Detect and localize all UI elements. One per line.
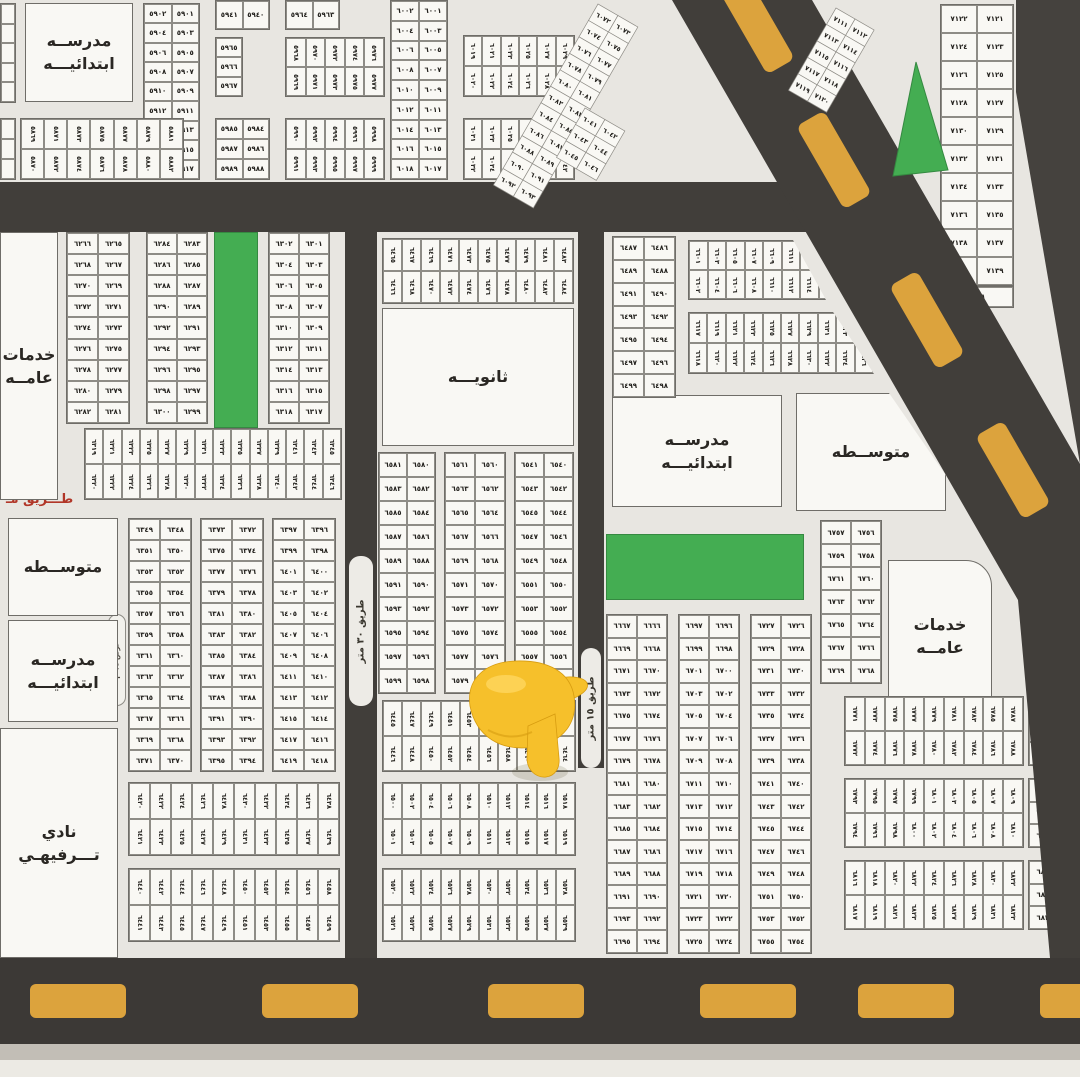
plot-cell[interactable]: ٦٤٤٨	[213, 869, 234, 905]
plot-cell[interactable]: ٦٣٩٧	[273, 519, 304, 540]
plot-cell[interactable]: ٦٧٤٨	[781, 863, 811, 886]
plot-cell[interactable]: ٦٦٠٣	[708, 241, 727, 270]
plot-cell[interactable]: ٦٧٩٦	[865, 813, 885, 847]
plot-cell[interactable]: ٥٩٦٣	[313, 1, 340, 29]
plot-cell[interactable]: ٦٤١٩	[273, 750, 304, 771]
plot-cell[interactable]	[808, 85, 837, 112]
plot-cell[interactable]: ٦٢٩٤	[147, 339, 177, 360]
plot-cell[interactable]: ٦٧٧٩	[924, 697, 944, 731]
plot-cell[interactable]: ٦٦٩١	[607, 885, 637, 908]
plot-cell[interactable]: ٦٣٢١	[103, 429, 121, 464]
plot-cell[interactable]: ٥٨٨١	[160, 119, 183, 149]
plot-cell[interactable]: ٦٧٥٢	[781, 908, 811, 931]
plot-cell[interactable]: ٦٣٨٨	[232, 687, 263, 708]
plot-cell[interactable]: ٦٥٦٢	[475, 477, 505, 501]
plot-cell[interactable]: ٦٤٤٩	[213, 905, 234, 941]
plot-cell[interactable]: ٧١٣٩	[977, 257, 1013, 285]
plot-cell[interactable]: ٦٧٧٢	[845, 731, 865, 765]
plot-cell[interactable]: ٦٢٩٩	[177, 402, 207, 423]
plot-cell[interactable]	[599, 32, 628, 60]
plot-cell[interactable]: ٦٠٢٠	[464, 66, 482, 96]
plot-cell[interactable]: ٦٧٢٦	[781, 615, 811, 638]
plot-cell[interactable]: ٦٠١٨	[391, 159, 419, 179]
plot-cell[interactable]: ٦٥٨٨	[407, 549, 435, 573]
plot-cell[interactable]: ٦٥٧٠	[475, 573, 505, 597]
plot-cell[interactable]: ٦٠٢٢	[482, 66, 500, 96]
plot-cell[interactable]: ٦٧٧٤	[865, 731, 885, 765]
plot-cell[interactable]: ٦٤٤٣	[150, 905, 171, 941]
plot-cell[interactable]: ٦٨٣٣	[1003, 895, 1023, 929]
plot-cell[interactable]: ٦٤١٣	[273, 687, 304, 708]
plot-cell[interactable]: ٦٥١٧	[537, 819, 556, 855]
plot-cell[interactable]: ٦٤١٠	[304, 666, 335, 687]
plot-cell[interactable]: ٦٧٣٣	[751, 683, 781, 706]
plot-cell[interactable]: ٦٥٢٠	[383, 869, 402, 905]
plot-cell[interactable]: ٦٣٣١	[195, 429, 213, 464]
plot-cell[interactable]: ٦٧٥٥	[751, 930, 781, 953]
plot-cell[interactable]: ٦٥٥٠	[544, 573, 573, 597]
plot-cell[interactable]: ٦٠٢٦	[519, 66, 537, 96]
plot-cell[interactable]: ٦٣٥٥	[129, 582, 160, 603]
plot-cell[interactable]: ٦٤٩٤	[644, 328, 675, 351]
plot-cell[interactable]: ٦٧١٠	[709, 773, 739, 796]
plot-cell[interactable]: ٦٥٣٥	[517, 905, 536, 941]
plot-cell[interactable]: ٦٦٩٦	[709, 615, 739, 638]
plot-cell[interactable]: ٥٩٧١	[306, 67, 326, 96]
plot-cell[interactable]: ٦٢٩٥	[177, 360, 207, 381]
plot-cell[interactable]: ٦٥٧٦	[475, 645, 505, 669]
plot-cell[interactable]: ٦٨٢٣	[904, 895, 924, 929]
plot-cell[interactable]: ٦٣٦٨	[160, 729, 191, 750]
plot-cell[interactable]: ٦٤٣٨	[318, 783, 339, 819]
plot-cell[interactable]: ٦٤١١	[273, 666, 304, 687]
plot-cell[interactable]: ٥٨٧٥	[90, 119, 113, 149]
plot-cell[interactable]: ٦٥٤٨	[544, 549, 573, 573]
plot-cell[interactable]: ٦٧٣٤	[781, 705, 811, 728]
plot-cell[interactable]: ٦٤٤٧	[402, 701, 421, 736]
plot-cell[interactable]: ٦٨٠٠	[904, 813, 924, 847]
plot-cell[interactable]	[586, 136, 615, 164]
plot-cell[interactable]: ٥٨٨٢	[160, 149, 183, 179]
plot-cell[interactable]: ٦٢٩٦	[147, 360, 177, 381]
plot-cell[interactable]: ٥٩٦٩	[286, 67, 306, 96]
plot-cell[interactable]: ٥٨٧٤	[67, 149, 90, 179]
plot-cell[interactable]: ٥٩٩٢	[306, 119, 326, 149]
plot-cell[interactable]: ٦٦٨٩	[607, 863, 637, 886]
plot-cell[interactable]: ٦٤٦١	[537, 701, 556, 736]
plot-cell[interactable]: ٦٢٩٧	[177, 381, 207, 402]
plot-cell[interactable]: ٦٣٤٤	[304, 464, 322, 499]
plot-cell[interactable]	[579, 20, 608, 48]
plot-cell[interactable]: ٦٤٦٤	[556, 736, 575, 771]
plot-cell[interactable]: ٦٥٦١	[445, 453, 475, 477]
plot-cell[interactable]	[827, 8, 856, 35]
plot-cell[interactable]: ٦٦٣٦	[855, 343, 873, 373]
plot-cell[interactable]: ٦٠٢٥	[519, 36, 537, 66]
plot-cell[interactable]: ٦٦٨٤	[637, 818, 667, 841]
plot-cell[interactable]: ٦٤٩٠	[644, 283, 675, 306]
plot-cell[interactable]: ٦٥٤٣	[515, 477, 544, 501]
plot-cell[interactable]: ٦٧٨٢	[944, 731, 964, 765]
plot-cell[interactable]: ٥٨٧٢	[44, 149, 67, 179]
plot-cell[interactable]: ٦٥٩٥	[379, 621, 407, 645]
plot-cell[interactable]: ٦٥٠٥	[421, 819, 440, 855]
plot-cell[interactable]: ٦٥٠٤	[421, 783, 440, 819]
plot-cell[interactable]: ٦٣٢٥	[140, 429, 158, 464]
plot-cell[interactable]: ٦٤٢٣	[150, 819, 171, 855]
plot-cell[interactable]: ٦٧٣١	[751, 660, 781, 683]
plot-cell[interactable]: ٦٨٠٨	[983, 813, 1003, 847]
plot-cell[interactable]: ٦٧٤٠	[781, 773, 811, 796]
plot-cell[interactable]: ٦٣٢٩	[176, 429, 194, 464]
plot-cell[interactable]: ٦٣٦٥	[129, 687, 160, 708]
plot-cell[interactable]: ٦٧٢٢	[709, 908, 739, 931]
plot-cell[interactable]: ٦٧٠١	[679, 660, 709, 683]
plot-cell[interactable]: ٦٣٤٩	[129, 519, 160, 540]
plot-cell[interactable]: ٦٨٢٢	[904, 861, 924, 895]
facility-public-services-west[interactable]: خدماتعامــه	[0, 232, 58, 500]
plot-cell[interactable]: ٦٤٤٩	[421, 701, 440, 736]
plot-cell[interactable]: ٦٣٠٤	[269, 254, 299, 275]
plot-cell[interactable]: ٦٥٢٥	[421, 905, 440, 941]
plot-cell[interactable]: ٦٤٨٣	[554, 239, 573, 271]
plot-cell[interactable]: ٥٨٧٦	[90, 149, 113, 179]
plot-cell[interactable]: ٦٦٧٠	[637, 660, 667, 683]
plot-cell[interactable]: ٦٠١٣	[419, 120, 447, 140]
plot-cell[interactable]: ٦٥٨١	[379, 453, 407, 477]
plot-cell[interactable]: ٦٦٧٢	[637, 683, 667, 706]
plot-cell[interactable]: ٦٥٥٨	[544, 669, 573, 693]
plot-cell[interactable]: ٦٦٨٧	[607, 840, 637, 863]
plot-cell[interactable]: ٦٧٠٤	[709, 705, 739, 728]
plot-cell[interactable]: ٦٦٧٥	[607, 705, 637, 728]
plot-cell[interactable]: ٦٥٠١	[383, 819, 402, 855]
plot-cell[interactable]: ٦٠٠٣	[419, 21, 447, 41]
plot-cell[interactable]: ٦٥٢٤	[421, 869, 440, 905]
plot-cell[interactable]: ٦٦٦٩	[607, 638, 637, 661]
plot-cell[interactable]: ٦٤٠٠	[304, 561, 335, 582]
plot-cell[interactable]: ٦٥٠٧	[441, 819, 460, 855]
plot-cell[interactable]: ٦٤٨٦	[644, 237, 675, 260]
plot-cell[interactable]: ٦٦٠٧	[745, 241, 764, 270]
plot-cell[interactable]: ٦٣٢٢	[103, 464, 121, 499]
plot-cell[interactable]: ٦٧٦٩	[821, 660, 851, 683]
plot-cell[interactable]: ٦٤٥٢	[255, 869, 276, 905]
plot-cell[interactable]: ٦٧٠٥	[679, 705, 709, 728]
plot-cell[interactable]: ٦٧٦١	[821, 567, 851, 590]
plot-cell[interactable]: ٦٣٥٠	[160, 540, 191, 561]
plot-cell[interactable]: ٦٥٤٧	[515, 525, 544, 549]
plot-cell[interactable]: ٦٤٢٥	[171, 819, 192, 855]
plot-cell[interactable]: ٦٣٢٠	[85, 464, 103, 499]
plot-cell[interactable]: ٦٠٣٤	[482, 149, 500, 179]
plot-cell[interactable]: ٦٤٦٥	[383, 239, 402, 271]
plot-cell[interactable]: ٦٦١٩	[707, 313, 725, 343]
plot-cell[interactable]: ٦٠٤٢	[556, 149, 574, 179]
plot-cell[interactable]: ٦٧٠٨	[709, 750, 739, 773]
plot-cell[interactable]: ٦٠١٦	[391, 139, 419, 159]
plot-cell[interactable]: ٦٤٩٨	[644, 374, 675, 397]
plot-cell[interactable]: ٦٤٦٠	[517, 736, 536, 771]
plot-cell[interactable]: ٦٤٥٣	[460, 701, 479, 736]
plot-cell[interactable]: ٦٦٣٣	[836, 313, 854, 343]
plot-cell[interactable]: ٦٣٠٨	[269, 296, 299, 317]
plot-cell[interactable]: ٦٣٦١	[129, 645, 160, 666]
plot-cell[interactable]: ٦٧١٢	[709, 795, 739, 818]
plot-cell[interactable]: ٦٥٣٨	[556, 869, 575, 905]
plot-cell[interactable]: ٦٤٠٤	[304, 603, 335, 624]
plot-cell[interactable]: ٦٦٢٠	[707, 343, 725, 373]
plot-cell[interactable]: ٦٣٥١	[129, 540, 160, 561]
plot-cell[interactable]: ٦٥٥٣	[515, 597, 544, 621]
plot-cell[interactable]: ٥٨٧٩	[137, 119, 160, 149]
plot-cell[interactable]: ٦٢٧٥	[98, 339, 129, 360]
plot-cell[interactable]: ٦٠٣٢	[464, 149, 482, 179]
plot-cell[interactable]: ٦٣٦٦	[160, 708, 191, 729]
plot-cell[interactable]: ٦٣٦٤	[160, 687, 191, 708]
plot-cell[interactable]: ٦٠١٩	[464, 36, 482, 66]
plot-cell[interactable]: ٦٨١٥	[1029, 824, 1061, 847]
plot-cell[interactable]: ٦٦٠٨	[745, 270, 764, 299]
plot-cell[interactable]: ٥٩٩٩	[364, 149, 384, 179]
plot-cell[interactable]: ٦٣٤٢	[286, 464, 304, 499]
plot-cell[interactable]: ٦٤٩١	[613, 283, 644, 306]
plot-cell[interactable]: ٦٥٤٦	[544, 525, 573, 549]
plot-cell[interactable]: ٦٤٢٧	[192, 819, 213, 855]
plot-cell[interactable]: ٦٨٠٦	[964, 813, 984, 847]
plot-cell[interactable]: ٦٤٢٠	[129, 783, 150, 819]
plot-cell[interactable]: ٦٣٦٠	[160, 645, 191, 666]
plot-cell[interactable]: ٦٣٩١	[201, 708, 232, 729]
plot-cell[interactable]: ٦٧٠٣	[679, 683, 709, 706]
plot-cell[interactable]: ٦٤٧٠	[421, 271, 440, 303]
plot-cell[interactable]: ٦٤٤٦	[383, 736, 402, 771]
plot-cell[interactable]: ٧١٣٦	[941, 201, 977, 229]
plot-cell[interactable]: ٧١٢٦	[941, 61, 977, 89]
plot-cell[interactable]: ٧١٣٧	[977, 229, 1013, 257]
plot-cell[interactable]: ٦٦٩٠	[637, 885, 667, 908]
plot-cell[interactable]: ٦٥٨٩	[379, 549, 407, 573]
plot-cell[interactable]: ٦٤٠٧	[273, 624, 304, 645]
plot-cell[interactable]: ٦٠٢١	[482, 36, 500, 66]
plot-cell[interactable]: ٦٥٨٢	[407, 477, 435, 501]
plot-cell[interactable]: ٦٥٠٠	[383, 783, 402, 819]
plot-cell[interactable]: ٥٩٩٨	[364, 119, 384, 149]
plot-cell[interactable]: ٦٣٧٢	[232, 519, 263, 540]
plot-cell[interactable]: ٦٤١٥	[273, 708, 304, 729]
plot-cell[interactable]: ٦٠٠٧	[419, 60, 447, 80]
plot-cell[interactable]: ٦٤٧٨	[497, 271, 516, 303]
plot-cell[interactable]	[608, 16, 637, 44]
plot-cell[interactable]: ٧١٢٤	[941, 33, 977, 61]
plot-cell[interactable]: ٦٣٧٤	[232, 540, 263, 561]
facility-school-elementary-nw[interactable]: مدرســهابتدائيـــه	[25, 3, 133, 102]
plot-cell[interactable]: ٦٣٨٧	[201, 666, 232, 687]
plot-cell[interactable]: ٦٦٢٧	[781, 313, 799, 343]
plot-cell[interactable]: ٦٧٤٧	[751, 840, 781, 863]
plot-cell[interactable]: ٦٤٥٣	[255, 905, 276, 941]
plot-cell[interactable]: ٦٤٩٢	[644, 306, 675, 329]
plot-cell[interactable]: ٦٢٧٠	[67, 275, 98, 296]
plot-cell[interactable]: ٦٣٣٤	[213, 464, 231, 499]
plot-cell[interactable]: ٦٦٩٨	[709, 638, 739, 661]
plot-cell[interactable]: ٦٢٩٣	[177, 339, 207, 360]
facility-middle-school-west[interactable]: متوســطه	[8, 518, 118, 616]
plot-cell[interactable]: ٦٣٥٤	[160, 582, 191, 603]
plot-cell[interactable]: ٦٦٧٣	[607, 683, 637, 706]
plot-cell[interactable]: ٦٤٠٩	[273, 645, 304, 666]
plot-cell[interactable]: ٦٤٢١	[129, 819, 150, 855]
plot-cell[interactable]: ٦٤٩٥	[613, 328, 644, 351]
plot-cell[interactable]: ٦٤٥٧	[498, 701, 517, 736]
plot-cell[interactable]: ٧١٣٣	[977, 173, 1013, 201]
plot-cell[interactable]: ٦٤١٦	[304, 729, 335, 750]
plot-cell[interactable]: ٦٧٥٧	[821, 521, 851, 544]
plot-cell[interactable]: ٦٤٦٨	[402, 271, 421, 303]
plot-cell[interactable]: ٦٤٤١	[129, 905, 150, 941]
plot-cell[interactable]: ٦٣٤٨	[160, 519, 191, 540]
plot-cell[interactable]: ٦٥٦٣	[445, 477, 475, 501]
plot-cell[interactable]: ٥٩٠٦	[144, 43, 172, 62]
plot-cell[interactable]: ٦٧٧٨	[904, 731, 924, 765]
plot-cell[interactable]: ٦٧٢٧	[751, 615, 781, 638]
plot-cell[interactable]: ٦٣٤٦	[323, 464, 341, 499]
plot-cell[interactable]: ٦٤٥٨	[498, 736, 517, 771]
plot-cell[interactable]: ٦٤٢٨	[213, 783, 234, 819]
plot-cell[interactable]: ٦٤٣٣	[255, 819, 276, 855]
plot-cell[interactable]: ٦٤٥٩	[318, 905, 339, 941]
facility-public-services-east[interactable]: خدماتعامــه	[888, 560, 992, 712]
plot-cell[interactable]: ٦٧٨٥	[983, 697, 1003, 731]
plot-cell[interactable]: ٦٨١٠	[1003, 813, 1023, 847]
plot-cell[interactable]: ٦٧٢٣	[679, 908, 709, 931]
plot-cell[interactable]: ٥٩٠٣	[172, 23, 200, 42]
plot-cell[interactable]: ٦٧٧٧	[904, 697, 924, 731]
plot-cell[interactable]: ٦٧٠٦	[709, 728, 739, 751]
plot-cell[interactable]: ٦٣٨٥	[201, 645, 232, 666]
plot-cell[interactable]: ٦٢٦٩	[98, 275, 129, 296]
plot-cell[interactable]: ٦٧٢٥	[679, 930, 709, 953]
plot-cell[interactable]: ٦٤٤٦	[192, 869, 213, 905]
plot-cell[interactable]: ٦٠٣١	[464, 119, 482, 149]
plot-cell[interactable]	[595, 120, 624, 148]
plot-cell[interactable]: ٥٩٠٨	[144, 62, 172, 81]
plot-cell[interactable]: ٦٧٦٧	[821, 637, 851, 660]
plot-cell[interactable]: ٦٦٣٥	[855, 313, 873, 343]
plot-cell[interactable]: ٦٠٢٤	[501, 66, 519, 96]
plot-cell[interactable]: ٦٥٥٢	[544, 597, 573, 621]
plot-cell[interactable]: ٧١٣٠	[941, 117, 977, 145]
plot-cell[interactable]: ٦٧١٤	[709, 818, 739, 841]
plot-cell[interactable]: ٦٥٢٧	[441, 905, 460, 941]
plot-cell[interactable]: ٦٣٠١	[299, 233, 329, 254]
plot-cell[interactable]: ٦٤٠٦	[304, 624, 335, 645]
plot-cell[interactable]: ٦٦٦٨	[637, 638, 667, 661]
plot-cell[interactable]: ٦٤٠٣	[273, 582, 304, 603]
plot-cell[interactable]: ٦٣٤٥	[323, 429, 341, 464]
plot-cell[interactable]: ٦٨٠٣	[944, 779, 964, 813]
plot-cell[interactable]: ٦٤٥٦	[297, 869, 318, 905]
plot-cell[interactable]: ٦٤٨٤	[554, 271, 573, 303]
plot-cell[interactable]: ٦٥١٤	[517, 783, 536, 819]
plot-cell[interactable]: ٦٦٧١	[607, 660, 637, 683]
plot-cell[interactable]: ٦٤٥٠	[234, 869, 255, 905]
plot-cell[interactable]: ٦٨٠٤	[944, 813, 964, 847]
facility-secondary-school[interactable]: ثانويـــه	[382, 308, 574, 446]
plot-cell[interactable]: ٦٨١٧	[845, 895, 865, 929]
plot-cell[interactable]: ٦٧٥٦	[851, 521, 881, 544]
plot-cell[interactable]	[580, 65, 609, 93]
plot-cell[interactable]: ٥٩٧٧	[364, 67, 384, 96]
plot-cell[interactable]: ٦٧٥٣	[751, 908, 781, 931]
plot-cell[interactable]: ٦٦٢٩	[799, 313, 817, 343]
plot-cell[interactable]: ٥٩٩٠	[286, 119, 306, 149]
plot-cell[interactable]: ٦٠١٠	[391, 80, 419, 100]
plot-cell[interactable]	[817, 24, 846, 51]
plot-cell[interactable]: ٦٨٢١	[885, 895, 905, 929]
plot-cell[interactable]: ٥٩٤٠	[243, 1, 270, 29]
plot-cell[interactable]: ٥٨٦٩	[21, 119, 44, 149]
plot-cell[interactable]	[817, 68, 846, 95]
plot-cell[interactable]: ٦٨٣٢	[1003, 861, 1023, 895]
plot-cell[interactable]: ٥٨٧٧	[114, 119, 137, 149]
facility-middle-school-east[interactable]: متوســطه	[796, 393, 946, 511]
plot-cell[interactable]: ٥٩٠٤	[144, 23, 172, 42]
plot-cell[interactable]: ٦٣١٠	[269, 317, 299, 338]
plot-cell[interactable]: ٦٠٢٨	[537, 66, 555, 96]
plot-cell[interactable]: ٦٥١٩	[556, 819, 575, 855]
plot-cell[interactable]: ٦٨٠١	[924, 779, 944, 813]
plot-cell[interactable]: ٦٤٨٩	[613, 260, 644, 283]
plot-cell[interactable]: ٦٣٧٥	[201, 540, 232, 561]
plot-cell[interactable]: ٦٤٧٥	[478, 239, 497, 271]
plot-cell[interactable]: ٦٥٤١	[515, 453, 544, 477]
plot-cell[interactable]: ٦٥٧٥	[445, 621, 475, 645]
plot-cell[interactable]: ٦٣٠٢	[269, 233, 299, 254]
plot-cell[interactable]: ٦٨١٨	[865, 861, 885, 895]
plot-cell[interactable]: ٦٥٣٦	[537, 869, 556, 905]
plot-cell[interactable]: ٥٩٤١	[216, 1, 243, 29]
plot-cell[interactable]: ٦٣٨٤	[232, 645, 263, 666]
plot-cell[interactable]: ٦٢٨٦	[147, 254, 177, 275]
plot-cell[interactable]: ٦٨٠٧	[983, 779, 1003, 813]
plot-cell[interactable]: ٦٤٥٩	[517, 701, 536, 736]
plot-cell[interactable]: ٦٤٧٩	[516, 239, 535, 271]
plot-cell[interactable]: ٦٧٧٣	[865, 697, 885, 731]
plot-cell[interactable]: ٦٦١٠	[763, 270, 782, 299]
plot-cell[interactable]: ٦٧١١	[679, 773, 709, 796]
plot-cell[interactable]: ٦٣٣٥	[231, 429, 249, 464]
plot-cell[interactable]: ٦٧٧٥	[885, 697, 905, 731]
plot-cell[interactable]: ٦٥٩٦	[407, 645, 435, 669]
plot-cell[interactable]: ٥٨٧٨	[114, 149, 137, 179]
plot-cell[interactable]: ٥٩٦٨	[286, 38, 306, 67]
plot-cell[interactable]: ٦٣٠٩	[299, 317, 329, 338]
plot-cell[interactable]: ٦٧٧٦	[885, 731, 905, 765]
plot-cell[interactable]: ٦٧٩٨	[885, 813, 905, 847]
plot-cell[interactable]: ٦٨٢٠	[885, 861, 905, 895]
plot-cell[interactable]: ٦٧٨٠	[924, 731, 944, 765]
plot-cell[interactable]: ٦٦٨٨	[637, 863, 667, 886]
plot-cell[interactable]: ٦٢٧٩	[98, 381, 129, 402]
plot-cell[interactable]: ٦٨٢٨	[964, 861, 984, 895]
plot-cell[interactable]: ٦٣٤٠	[268, 464, 286, 499]
plot-cell[interactable]: ٥٨٨٠	[137, 149, 160, 179]
plot-cell[interactable]: ٦٦٢٤	[744, 343, 762, 373]
plot-cell[interactable]: ٦٠٠٨	[391, 60, 419, 80]
plot-cell[interactable]: ٦٤٧٢	[440, 271, 459, 303]
plot-cell[interactable]: ٦٧٩٧	[885, 779, 905, 813]
